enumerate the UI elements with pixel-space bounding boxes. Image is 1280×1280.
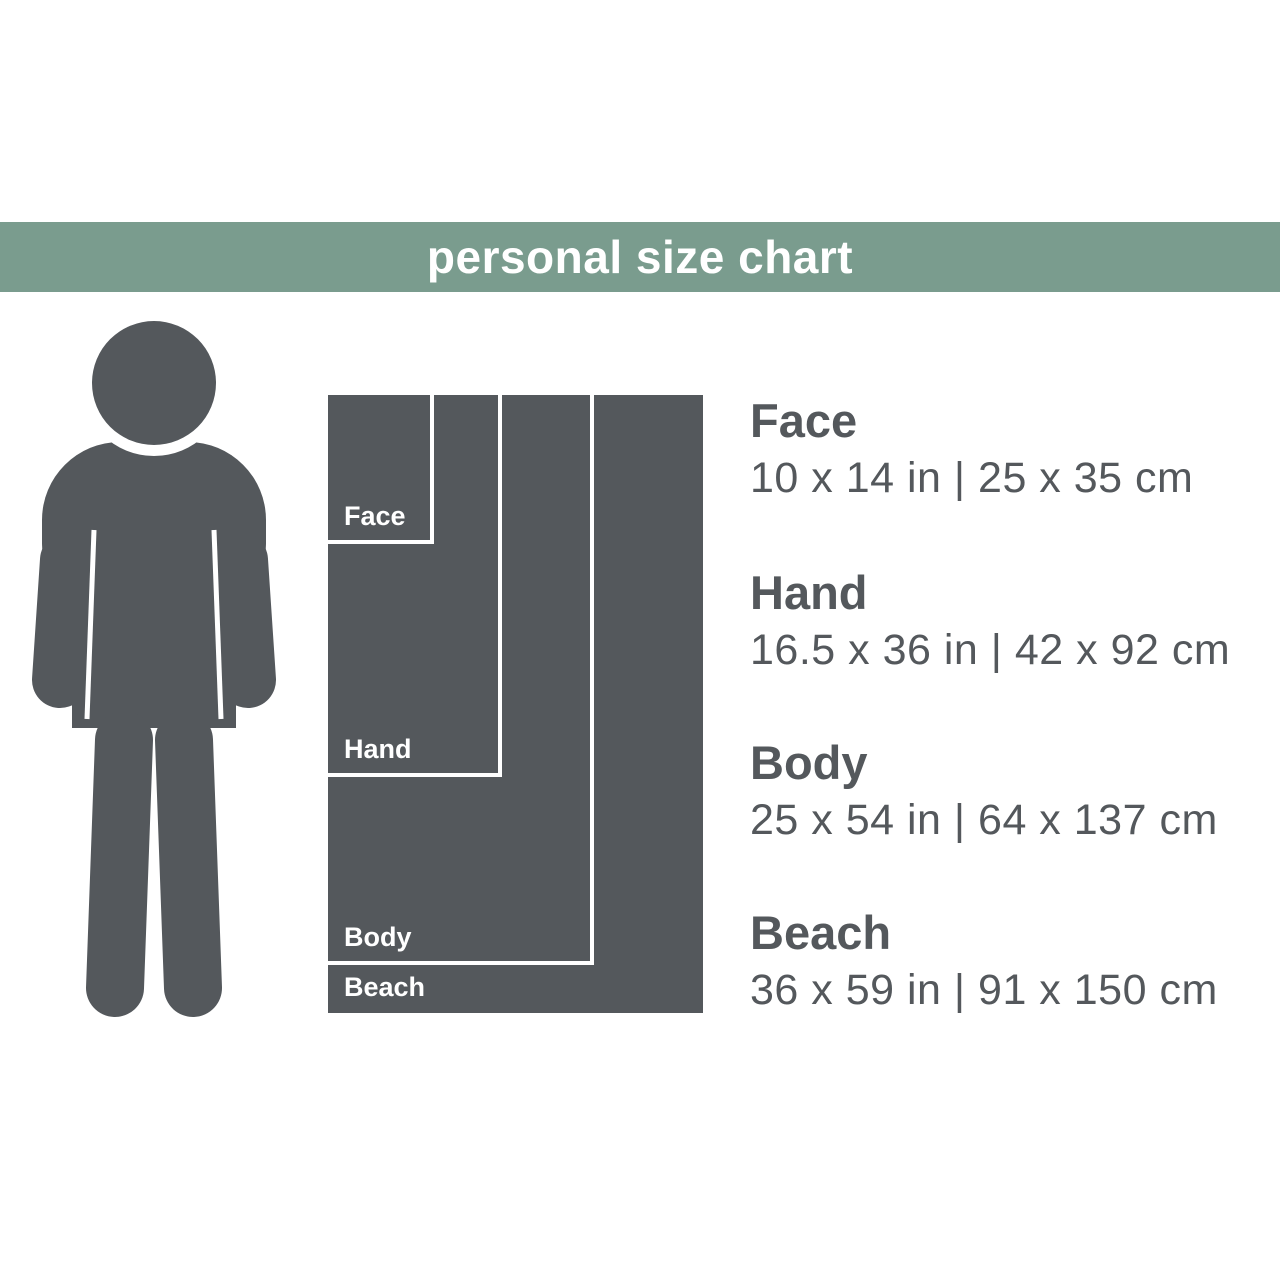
beach-box-label: Beach: [344, 972, 425, 1003]
legend-entry-name: Beach: [750, 908, 1218, 957]
size-comparison-block: Body Hand Face Beach: [328, 395, 703, 1013]
body-box-label: Body: [344, 922, 412, 953]
legend-entry-hand: Hand 16.5 x 36 in | 42 x 92 cm: [750, 568, 1230, 675]
legend-entry-dimensions: 25 x 54 in | 64 x 137 cm: [750, 796, 1218, 845]
legend-entry-name: Face: [750, 396, 1193, 445]
personal-size-chart: personal size chart Body Hand Face Beach: [0, 0, 1280, 1280]
page-title: personal size chart: [427, 230, 853, 284]
legend-entry-dimensions: 10 x 14 in | 25 x 35 cm: [750, 454, 1193, 503]
legend-entry-beach: Beach 36 x 59 in | 91 x 150 cm: [750, 908, 1218, 1015]
hand-box-label: Hand: [344, 734, 412, 765]
legend-entry-name: Hand: [750, 568, 1230, 617]
legend-entry-dimensions: 16.5 x 36 in | 42 x 92 cm: [750, 626, 1230, 675]
legend-entry-name: Body: [750, 738, 1218, 787]
face-size-box: Face: [328, 395, 434, 544]
face-box-label: Face: [344, 501, 406, 532]
legend-entry-dimensions: 36 x 59 in | 91 x 150 cm: [750, 966, 1218, 1015]
legend-entry-face: Face 10 x 14 in | 25 x 35 cm: [750, 396, 1193, 503]
person-silhouette-icon: [28, 320, 278, 1032]
legend-entry-body: Body 25 x 54 in | 64 x 137 cm: [750, 738, 1218, 845]
header-band: personal size chart: [0, 222, 1280, 292]
